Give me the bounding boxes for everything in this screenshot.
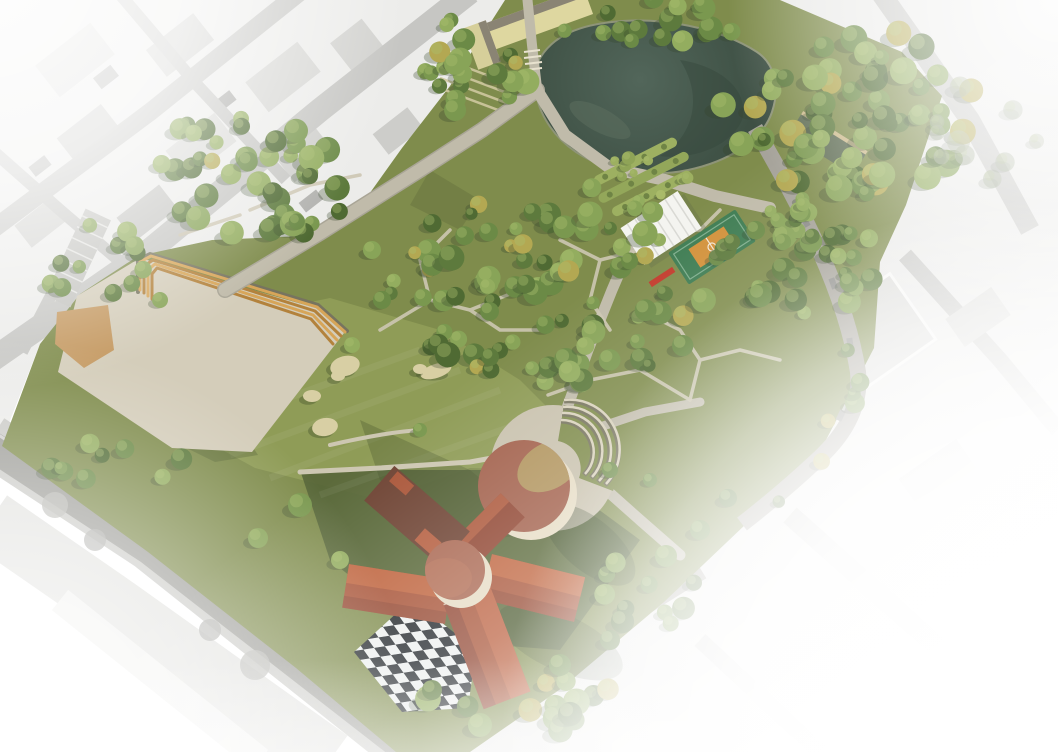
site-plan-svg	[0, 0, 1058, 752]
white-vignette	[0, 0, 1058, 752]
masterplan-render	[0, 0, 1058, 752]
